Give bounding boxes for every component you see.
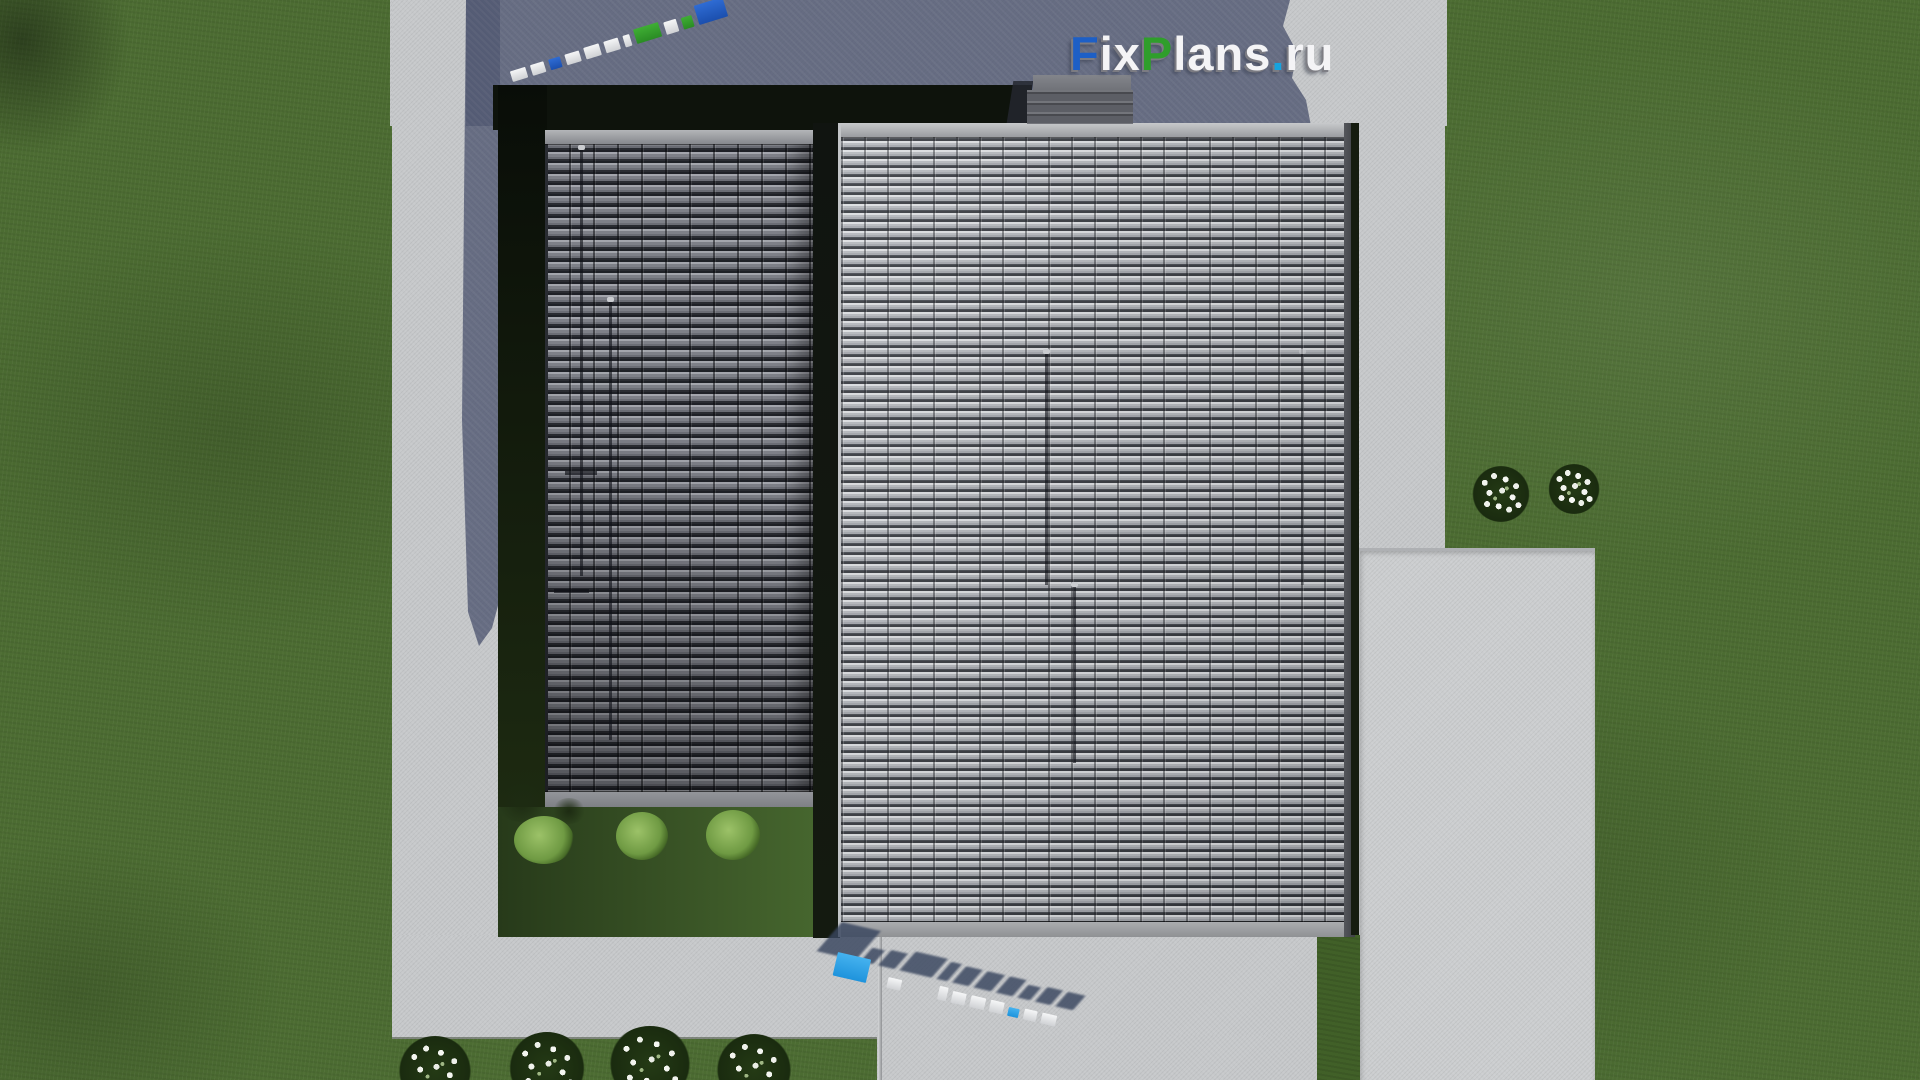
snow-guard-bar — [565, 471, 597, 475]
chimney-body — [1027, 90, 1133, 124]
shrub — [706, 810, 760, 860]
snow-guard-line — [1073, 585, 1076, 763]
grass-sliver-right-of-roof — [1351, 123, 1359, 935]
patio — [1358, 548, 1595, 1080]
fixplans-logo: FixPlans.ru — [1070, 26, 1334, 81]
flower-bush — [398, 1036, 472, 1080]
roof-left-shade-tint — [545, 130, 815, 807]
roof-left-top-eave — [545, 130, 815, 144]
logo-letter-p: P — [1141, 27, 1173, 80]
snow-guard-line — [1301, 352, 1304, 585]
flower-bush — [1472, 466, 1530, 522]
logo-letter-f: F — [1070, 27, 1100, 80]
roof-right-top-eave — [841, 123, 1355, 137]
snow-guard-line — [609, 300, 612, 740]
logo-dot: . — [1271, 27, 1285, 80]
logo-letters-lans: lans — [1173, 27, 1271, 80]
roof-right-bottom-eave — [841, 922, 1355, 937]
chimney — [1027, 75, 1135, 124]
flower-bush — [1548, 464, 1600, 514]
snow-guard-line — [1045, 352, 1048, 585]
logo-letters-ix: ix — [1100, 27, 1141, 80]
shrub — [616, 812, 668, 860]
shrub — [514, 816, 574, 864]
watermark-block — [937, 986, 949, 1002]
logo-letters-ru: ru — [1285, 27, 1334, 80]
watermark-block — [871, 974, 884, 986]
roof-left-section — [545, 130, 815, 807]
shaded-grass-strip-left — [498, 85, 547, 807]
roof-right-section — [838, 123, 1355, 937]
roof-left-bottom-eave — [545, 792, 815, 807]
watermark-block — [622, 34, 632, 48]
path-right — [1352, 0, 1445, 552]
aerial-house-render: FixPlans.ru — [0, 0, 1920, 1080]
flower-bush — [716, 1034, 792, 1080]
snow-guard-bar — [554, 589, 589, 593]
grass-divider-strip — [1317, 935, 1360, 1080]
tree-shade-corner — [0, 0, 220, 220]
roof-gap-shadow — [813, 123, 840, 938]
snow-guard-line — [580, 148, 583, 576]
flower-bush — [508, 1032, 586, 1080]
path-bottom-extension — [877, 1035, 1317, 1080]
